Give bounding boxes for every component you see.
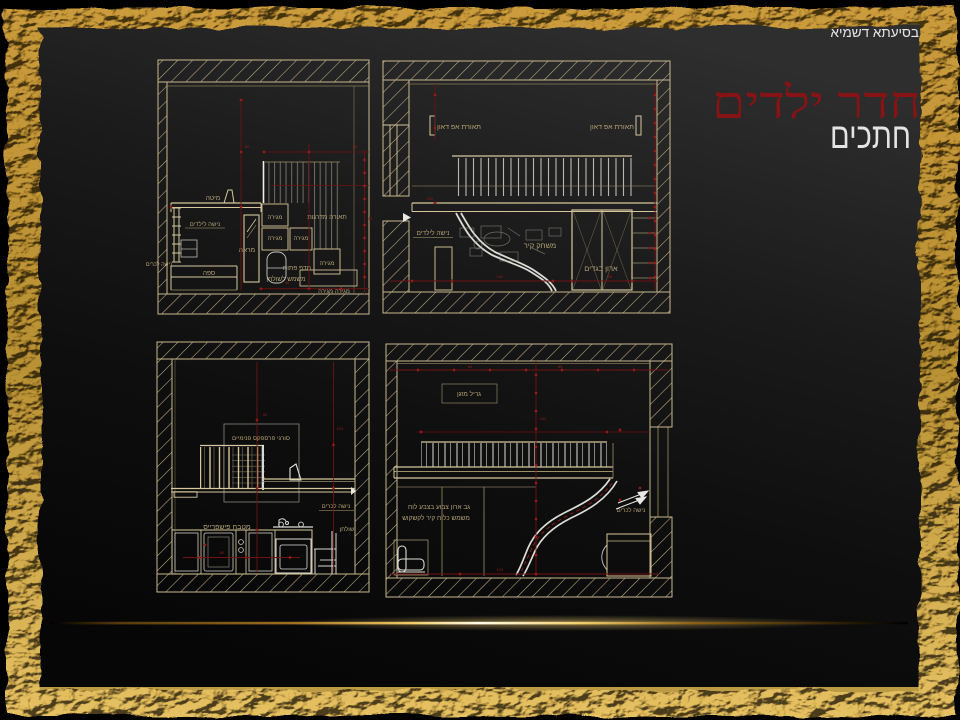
svg-text:נישה לכרים: נישה לכרים: [322, 502, 351, 510]
svg-text:גריל מזגן: גריל מזגן: [457, 390, 481, 398]
svg-text:ארון בגדים: ארון בגדים: [584, 264, 618, 273]
svg-text:244: 244: [540, 416, 547, 421]
svg-text:נישה לילדים: נישה לילדים: [190, 220, 221, 228]
svg-text:מגירה: מגירה: [267, 236, 282, 242]
svg-text:נישה לילדים: נישה לילדים: [416, 229, 450, 237]
svg-text:210: 210: [427, 196, 434, 201]
svg-text:מגירה: מגירה: [319, 261, 334, 267]
svg-text:סורגי פרספקס פנימיים: סורגי פרספקס פנימיים: [232, 435, 290, 442]
svg-text:140: 140: [497, 274, 504, 279]
svg-text:120: 120: [497, 567, 504, 572]
svg-text:46: 46: [285, 280, 290, 285]
svg-text:60: 60: [353, 144, 358, 149]
svg-text:מדף פתוח: מדף פתוח: [283, 265, 311, 272]
svg-text:משחק קיר: משחק קיר: [524, 241, 556, 250]
svg-text:תאורת אפ דאון: תאורת אפ דאון: [437, 124, 481, 131]
svg-text:שולחן: שולחן: [340, 525, 355, 533]
svg-text:מגירה מגירה: מגירה מגירה: [318, 289, 350, 295]
svg-text:90: 90: [263, 412, 268, 417]
svg-text:נישה לכרים: נישה לכרים: [146, 261, 172, 268]
svg-text:60: 60: [608, 274, 613, 279]
svg-text:בסיעתא דשמיא: בסיעתא דשמיא: [831, 25, 919, 40]
svg-text:מגירה: מגירה: [267, 215, 282, 221]
svg-text:80: 80: [245, 144, 250, 149]
svg-text:חתכים: חתכים: [830, 115, 911, 156]
svg-text:מגירה: מגירה: [293, 236, 308, 242]
svg-text:120: 120: [337, 426, 344, 431]
svg-text:משמש כלוח קיר לקשקוש: משמש כלוח קיר לקשקוש: [402, 514, 470, 522]
svg-text:80: 80: [468, 364, 473, 369]
svg-text:תאורת אפ דאון: תאורת אפ דאון: [590, 124, 634, 131]
svg-text:ספה: ספה: [203, 270, 215, 277]
svg-text:60: 60: [220, 550, 225, 555]
svg-text:גב ארון צבוע בצבע לוח: גב ארון צבוע בצבע לוח: [408, 503, 470, 511]
svg-text:80: 80: [558, 364, 563, 369]
svg-text:מיטה: מיטה: [206, 195, 221, 202]
svg-text:תאורה מדרגות: תאורה מדרגות: [307, 214, 347, 221]
svg-text:40: 40: [368, 216, 373, 221]
